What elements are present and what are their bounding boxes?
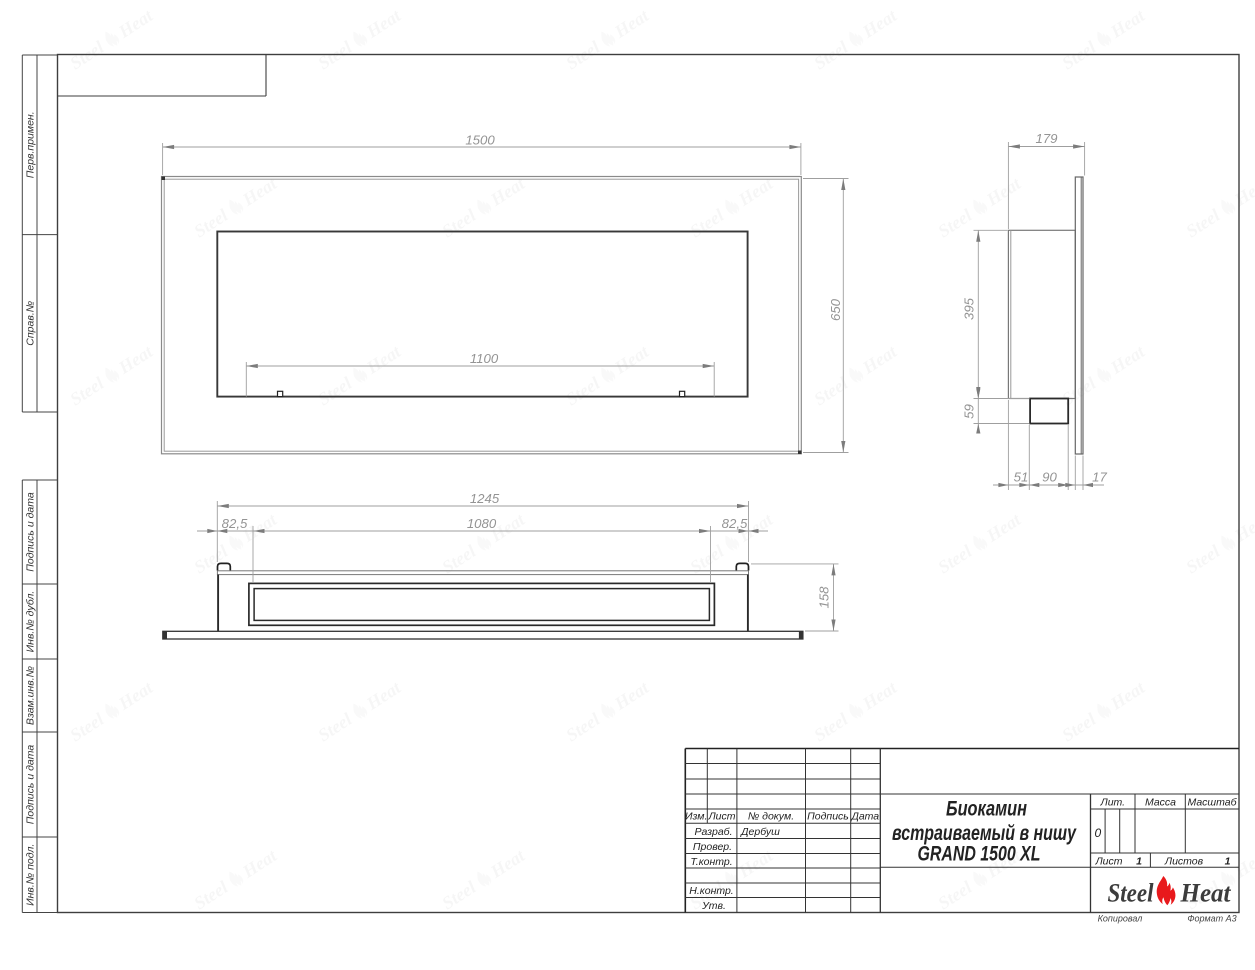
- svg-text:Масса: Масса: [1145, 796, 1176, 808]
- svg-text:Heat: Heat: [362, 677, 405, 714]
- svg-text:Steel: Steel: [1058, 709, 1099, 745]
- svg-text:158: 158: [817, 586, 832, 609]
- svg-text:82,5: 82,5: [722, 516, 748, 531]
- svg-text:Heat: Heat: [362, 341, 405, 378]
- svg-text:Steel: Steel: [686, 205, 727, 241]
- svg-text:Heat: Heat: [610, 5, 653, 42]
- svg-text:Heat: Heat: [486, 173, 529, 210]
- svg-text:1080: 1080: [467, 516, 497, 531]
- svg-text:Heat: Heat: [982, 173, 1025, 210]
- svg-text:90: 90: [1042, 470, 1057, 485]
- svg-text:Heat: Heat: [858, 677, 901, 714]
- svg-text:Steel: Steel: [438, 877, 479, 913]
- svg-text:59: 59: [961, 404, 976, 419]
- svg-text:Изм.: Изм.: [685, 811, 707, 823]
- svg-text:Справ.№: Справ.№: [25, 301, 37, 346]
- svg-text:Heat: Heat: [362, 5, 405, 42]
- svg-text:Steel: Steel: [686, 541, 727, 577]
- svg-text:Инв.№ подл.: Инв.№ подл.: [25, 844, 37, 906]
- svg-text:Steel: Steel: [314, 373, 355, 409]
- svg-text:Взам.инв.№: Взам.инв.№: [25, 666, 37, 725]
- svg-text:Heat: Heat: [1230, 845, 1255, 882]
- svg-text:Копировал: Копировал: [1098, 914, 1143, 924]
- svg-text:Heat: Heat: [238, 173, 281, 210]
- svg-text:Лит.: Лит.: [1100, 796, 1126, 808]
- svg-text:Н.контр.: Н.контр.: [689, 885, 733, 897]
- svg-text:Утв.: Утв.: [701, 900, 726, 912]
- svg-text:Steel: Steel: [1182, 205, 1223, 241]
- svg-text:Heat: Heat: [114, 5, 157, 42]
- svg-text:Лист: Лист: [707, 811, 735, 823]
- svg-text:Steel: Steel: [1108, 879, 1155, 908]
- svg-text:Провер.: Провер.: [693, 841, 732, 853]
- svg-text:Heat: Heat: [238, 845, 281, 882]
- svg-text:Steel: Steel: [190, 541, 231, 577]
- svg-text:Steel: Steel: [66, 373, 107, 409]
- svg-text:Масштаб: Масштаб: [1187, 796, 1237, 808]
- svg-text:Heat: Heat: [1230, 173, 1255, 210]
- svg-text:17: 17: [1092, 470, 1107, 485]
- svg-text:GRAND 1500 XL: GRAND 1500 XL: [918, 842, 1041, 865]
- svg-text:1245: 1245: [470, 491, 500, 506]
- svg-text:Перв.примен.: Перв.примен.: [25, 111, 37, 178]
- svg-text:Steel: Steel: [438, 205, 479, 241]
- svg-text:Steel: Steel: [810, 373, 851, 409]
- svg-text:Листов: Листов: [1164, 855, 1204, 867]
- svg-text:Heat: Heat: [1180, 879, 1232, 908]
- svg-text:Т.контр.: Т.контр.: [690, 856, 732, 868]
- svg-text:Heat: Heat: [114, 677, 157, 714]
- svg-text:Steel: Steel: [934, 877, 975, 913]
- svg-text:Heat: Heat: [1106, 5, 1149, 42]
- svg-text:Подпись и дата: Подпись и дата: [25, 492, 37, 572]
- svg-text:Steel: Steel: [562, 373, 603, 409]
- svg-text:Heat: Heat: [610, 677, 653, 714]
- svg-text:51: 51: [1014, 470, 1029, 485]
- svg-text:Подпись: Подпись: [807, 811, 849, 823]
- svg-text:Heat: Heat: [1106, 677, 1149, 714]
- svg-text:Heat: Heat: [858, 5, 901, 42]
- svg-text:Биокамин: Биокамин: [946, 798, 1027, 821]
- svg-text:1: 1: [1225, 855, 1231, 867]
- svg-text:Steel: Steel: [190, 205, 231, 241]
- svg-text:1500: 1500: [465, 133, 495, 148]
- svg-text:Heat: Heat: [486, 845, 529, 882]
- svg-text:Формат A3: Формат A3: [1187, 914, 1236, 924]
- svg-text:Heat: Heat: [858, 341, 901, 378]
- svg-text:Steel: Steel: [810, 709, 851, 745]
- svg-text:Heat: Heat: [734, 173, 777, 210]
- svg-text:Heat: Heat: [1230, 509, 1255, 546]
- svg-text:Разраб.: Разраб.: [695, 826, 733, 838]
- svg-text:Heat: Heat: [982, 509, 1025, 546]
- svg-text:Дата: Дата: [850, 811, 879, 823]
- svg-text:650: 650: [828, 298, 843, 321]
- svg-text:0: 0: [1094, 826, 1101, 840]
- svg-text:82,5: 82,5: [222, 516, 248, 531]
- svg-text:Steel: Steel: [562, 709, 603, 745]
- svg-text:1: 1: [1136, 855, 1142, 867]
- svg-text:Инв.№ дубл.: Инв.№ дубл.: [25, 591, 37, 653]
- svg-text:Steel: Steel: [934, 205, 975, 241]
- svg-text:Steel: Steel: [66, 709, 107, 745]
- svg-text:Steel: Steel: [1182, 541, 1223, 577]
- svg-text:179: 179: [1035, 131, 1058, 146]
- svg-text:Heat: Heat: [610, 341, 653, 378]
- svg-text:Подпись и дата: Подпись и дата: [25, 745, 37, 825]
- svg-text:1100: 1100: [470, 351, 499, 366]
- svg-text:№ докум.: № докум.: [748, 811, 794, 823]
- svg-text:Steel: Steel: [190, 877, 231, 913]
- svg-text:Steel: Steel: [1058, 373, 1099, 409]
- svg-text:Дербуш: Дербуш: [740, 826, 780, 838]
- svg-text:Steel: Steel: [438, 541, 479, 577]
- svg-text:Heat: Heat: [114, 341, 157, 378]
- svg-text:Heat: Heat: [1106, 341, 1149, 378]
- svg-text:Steel: Steel: [314, 709, 355, 745]
- svg-text:Heat: Heat: [734, 845, 777, 882]
- svg-text:395: 395: [961, 297, 976, 320]
- svg-text:Steel: Steel: [934, 541, 975, 577]
- svg-text:Лист: Лист: [1094, 855, 1122, 867]
